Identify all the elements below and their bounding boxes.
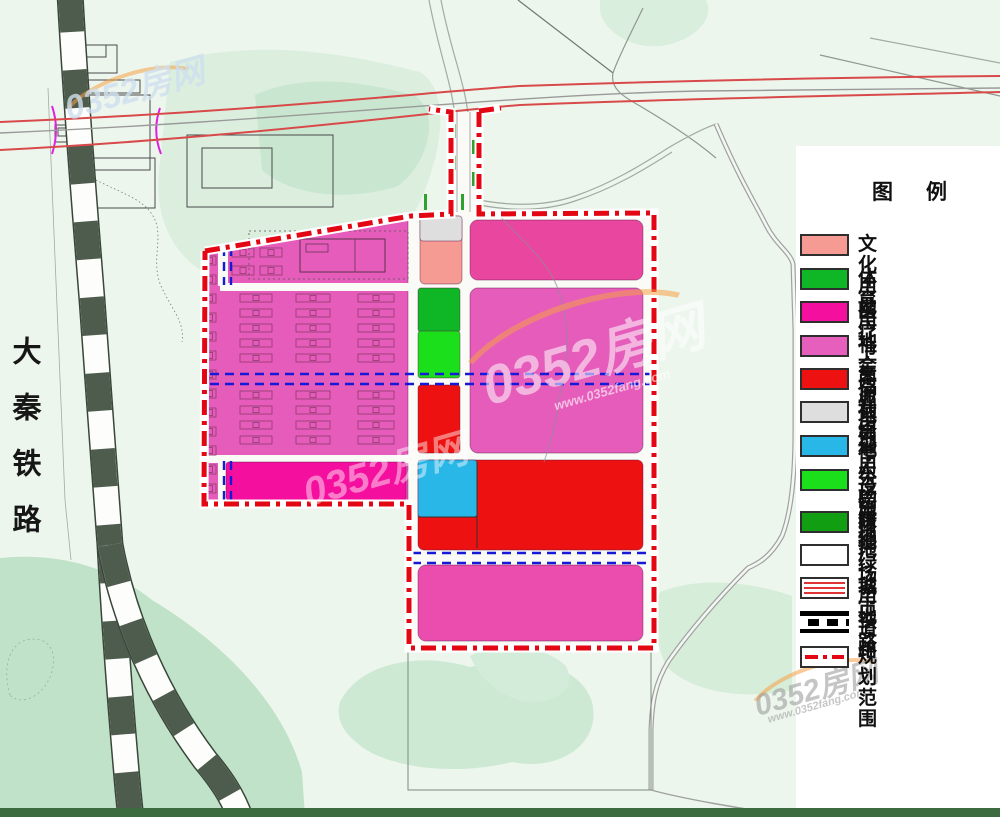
parcel-medical: [226, 462, 406, 500]
legend-swatch-culture: [800, 234, 849, 256]
legend-swatch-railway: [800, 611, 849, 633]
legend-swatch-parking: [800, 401, 849, 423]
legend-swatch-medical: [800, 301, 849, 323]
parcel-welfare-northeast: [470, 220, 643, 280]
legend-swatch-city-road: [800, 577, 849, 599]
master-plan-map: [0, 0, 1000, 817]
legend-title: 图 例: [872, 176, 953, 206]
parcel-park-green: [418, 331, 460, 378]
parcel-sport: [418, 288, 460, 332]
legend-swatch-park-green: [800, 469, 849, 491]
railway-name-label: 大秦铁路: [9, 336, 39, 560]
legend-swatch-utility: [800, 435, 849, 457]
parcel-welfare-south: [418, 565, 643, 641]
parcel-commercial-small: [418, 385, 460, 453]
legend-swatch-square: [800, 544, 849, 566]
legend-swatch-protect-green: [800, 511, 849, 533]
legend-swatch-plan-boundary: [800, 646, 849, 668]
legend-swatch-welfare: [800, 335, 849, 357]
parcel-utility: [418, 460, 477, 517]
legend-swatch-commercial: [800, 368, 849, 390]
parcel-welfare-east: [470, 288, 643, 453]
legend-swatch-sport: [800, 268, 849, 290]
parcel-parking: [420, 216, 462, 241]
bottom-edge-band: [0, 808, 1000, 817]
master-plan-page: 0352房网 0352房网 www.0352fang.com 0352房网 03…: [0, 0, 1000, 817]
